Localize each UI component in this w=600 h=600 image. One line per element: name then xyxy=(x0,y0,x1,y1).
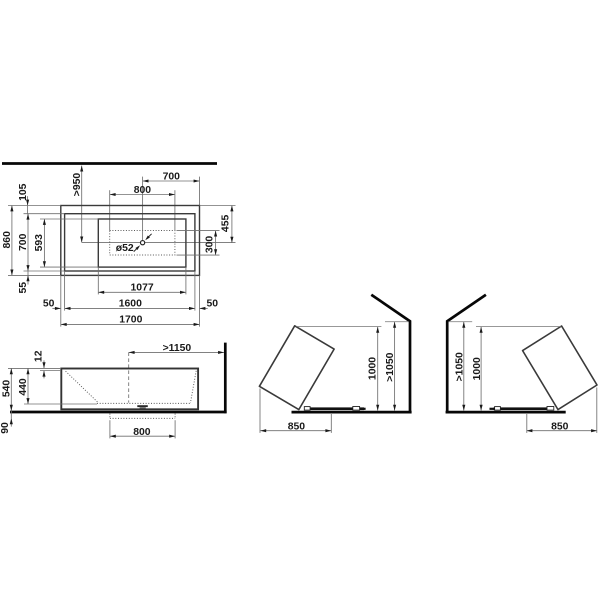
svg-text:1000: 1000 xyxy=(368,357,379,380)
svg-text:1700: 1700 xyxy=(119,315,142,326)
svg-text:700: 700 xyxy=(18,233,29,251)
svg-text:455: 455 xyxy=(221,215,232,233)
svg-text:1077: 1077 xyxy=(131,282,154,293)
svg-text:300: 300 xyxy=(204,236,215,254)
svg-text:860: 860 xyxy=(2,231,13,249)
svg-text:850: 850 xyxy=(551,421,569,432)
svg-text:440: 440 xyxy=(18,378,29,396)
svg-text:700: 700 xyxy=(163,172,181,183)
svg-text:800: 800 xyxy=(134,185,152,196)
svg-text:>950: >950 xyxy=(72,173,83,197)
svg-text:593: 593 xyxy=(34,234,45,252)
svg-text:50: 50 xyxy=(43,298,55,309)
svg-text:850: 850 xyxy=(288,421,306,432)
svg-text:55: 55 xyxy=(18,282,29,294)
svg-text:50: 50 xyxy=(207,298,219,309)
svg-text:90: 90 xyxy=(0,422,11,434)
svg-text:105: 105 xyxy=(18,183,29,201)
svg-text:>1150: >1150 xyxy=(163,343,192,354)
svg-text:>1050: >1050 xyxy=(455,352,466,381)
svg-text:540: 540 xyxy=(2,380,13,398)
svg-text:12: 12 xyxy=(34,350,45,362)
svg-text:>1050: >1050 xyxy=(385,352,396,381)
svg-text:800: 800 xyxy=(133,427,151,438)
svg-text:ø52: ø52 xyxy=(116,243,134,254)
svg-text:1600: 1600 xyxy=(119,298,142,309)
svg-text:1000: 1000 xyxy=(472,357,483,380)
